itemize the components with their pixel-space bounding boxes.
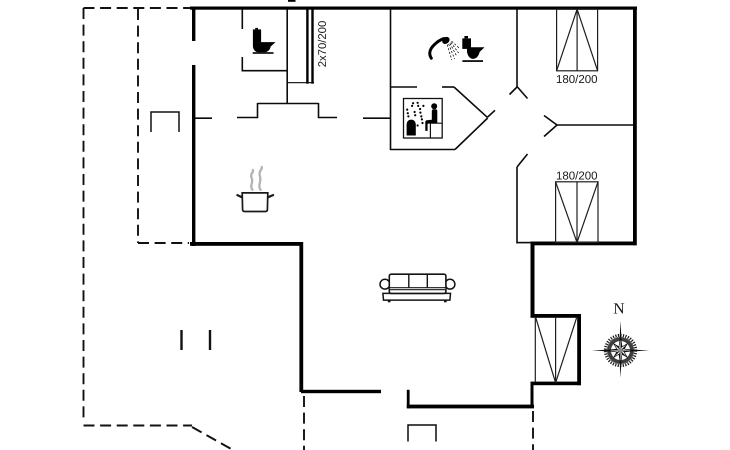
svg-text:180/200: 180/200 — [556, 171, 598, 183]
svg-text:N: N — [613, 301, 624, 318]
svg-text:2x70/200: 2x70/200 — [317, 21, 329, 67]
svg-text:180/200: 180/200 — [556, 74, 598, 86]
